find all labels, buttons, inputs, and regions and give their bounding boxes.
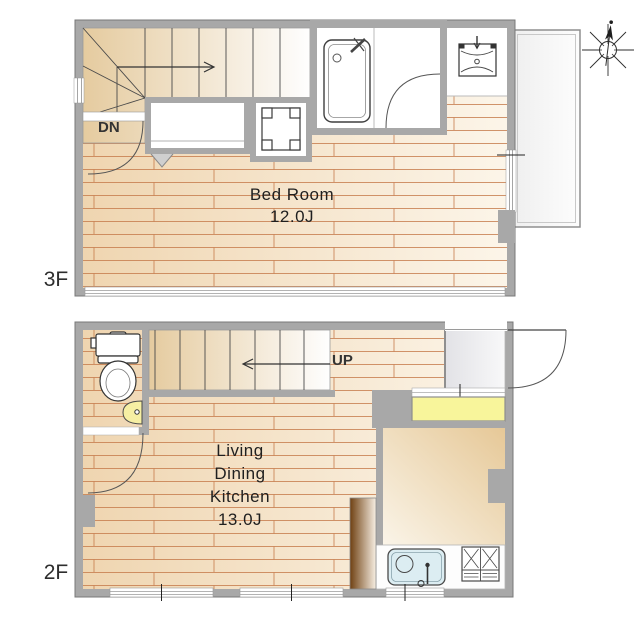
washer-pan-room	[250, 97, 312, 162]
dn-label: DN	[98, 119, 120, 136]
kitchen-top-wall	[372, 421, 505, 428]
bathtub-icon	[324, 40, 370, 122]
kitchen-sink-icon	[388, 549, 445, 587]
kitchen-floor	[383, 428, 505, 545]
ldk-label-line1: Living	[165, 439, 315, 462]
ldk-size-label: 13.0J	[165, 508, 315, 531]
partition-brown	[350, 498, 376, 589]
ldk-label-line2: Dining	[165, 462, 315, 485]
floor-label-2f: 2F	[34, 561, 78, 585]
floor-label-3f: 3F	[34, 268, 78, 292]
up-label: UP	[332, 352, 353, 369]
bathroom-3f	[310, 20, 447, 135]
bedroom-size-label: 12.0J	[222, 207, 362, 227]
floorplan-drawing	[0, 0, 640, 631]
gas-stove-icon	[462, 547, 499, 581]
ldk-label-block: Living Dining Kitchen 13.0J	[165, 439, 315, 531]
vanity-area-3f	[447, 28, 507, 96]
ldk-label-line3: Kitchen	[165, 485, 315, 508]
staircase-2f	[149, 330, 335, 397]
stair-bottom-wall	[149, 390, 335, 397]
bedroom-name-label: Bed Room	[222, 185, 362, 205]
wall-pier-right	[488, 469, 505, 503]
north-arrow-icon	[582, 20, 634, 76]
kitchen-left-wall	[376, 421, 383, 545]
kitchen-2f	[376, 428, 505, 589]
balcony-3f	[513, 30, 580, 227]
floor-plan-2f	[75, 321, 566, 601]
floorplan-canvas: Bed Room 12.0J DN UP 3F 2F Living Dining…	[0, 0, 640, 631]
floor-plan-3f	[74, 20, 580, 296]
wall-pier-left-2f	[83, 495, 95, 527]
window-left-3f	[74, 78, 84, 103]
wall-pier-balcony	[498, 210, 515, 243]
window-band-bottom-3f	[85, 287, 505, 296]
shoe-counter	[412, 397, 505, 421]
entrance-door-arc	[508, 330, 566, 388]
washer-pan-icon	[262, 108, 300, 150]
